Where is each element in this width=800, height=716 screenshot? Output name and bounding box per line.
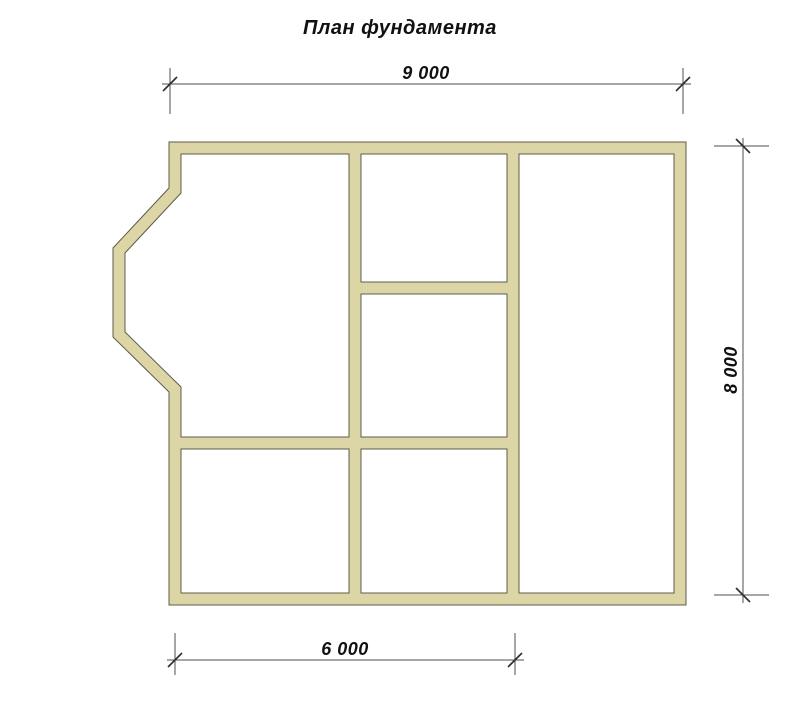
room-bottom-middle [361,449,507,593]
room-top-left-with-bay [125,154,349,437]
dimension-bottom-label: 6 000 [321,639,369,659]
foundation-plan-page: План фундамента 9 000 [0,0,800,716]
page-title: План фундамента [303,17,497,39]
room-top-middle [361,154,507,282]
room-bottom-left [181,449,349,593]
dimension-right-label: 8 000 [721,346,741,394]
foundation-walls [113,142,686,605]
dimension-top-label: 9 000 [402,63,450,83]
dimension-right: 8 000 [714,138,769,603]
foundation-plan-drawing: План фундамента 9 000 [0,0,800,716]
dimension-bottom: 6 000 [167,633,524,675]
dimension-top: 9 000 [162,63,691,114]
room-center-middle [361,294,507,437]
room-right [519,154,674,593]
